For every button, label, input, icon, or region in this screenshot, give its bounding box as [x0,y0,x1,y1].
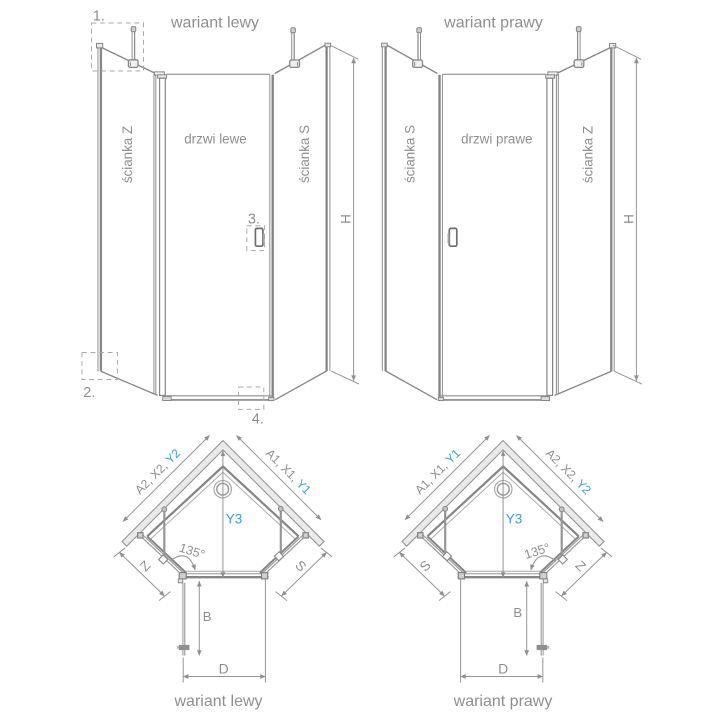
svg-text:ścianka Z: ścianka Z [120,126,135,183]
svg-text:1.: 1. [93,8,105,24]
svg-text:3.: 3. [248,212,260,228]
svg-text:wariant lewy: wariant lewy [173,693,262,710]
svg-text:ścianka Z: ścianka Z [580,126,595,183]
svg-text:ścianka S: ścianka S [402,125,417,183]
svg-text:wariant prawy: wariant prawy [453,693,553,710]
svg-text:Y3: Y3 [226,512,243,527]
svg-text:D: D [498,660,508,676]
svg-text:4.: 4. [252,411,264,427]
svg-text:wariant lewy: wariant lewy [170,15,259,32]
svg-text:D: D [219,660,229,676]
svg-text:B: B [513,605,522,620]
svg-text:wariant prawy: wariant prawy [443,15,543,32]
svg-text:Y3: Y3 [506,512,523,527]
svg-text:H: H [339,214,354,224]
svg-text:2.: 2. [83,385,95,401]
svg-text:B: B [203,609,212,624]
svg-text:H: H [621,214,636,224]
svg-text:drzwi lewe: drzwi lewe [184,132,247,147]
svg-text:drzwi prawe: drzwi prawe [461,132,532,147]
svg-text:135°: 135° [177,541,206,562]
svg-text:ścianka S: ścianka S [297,125,312,183]
